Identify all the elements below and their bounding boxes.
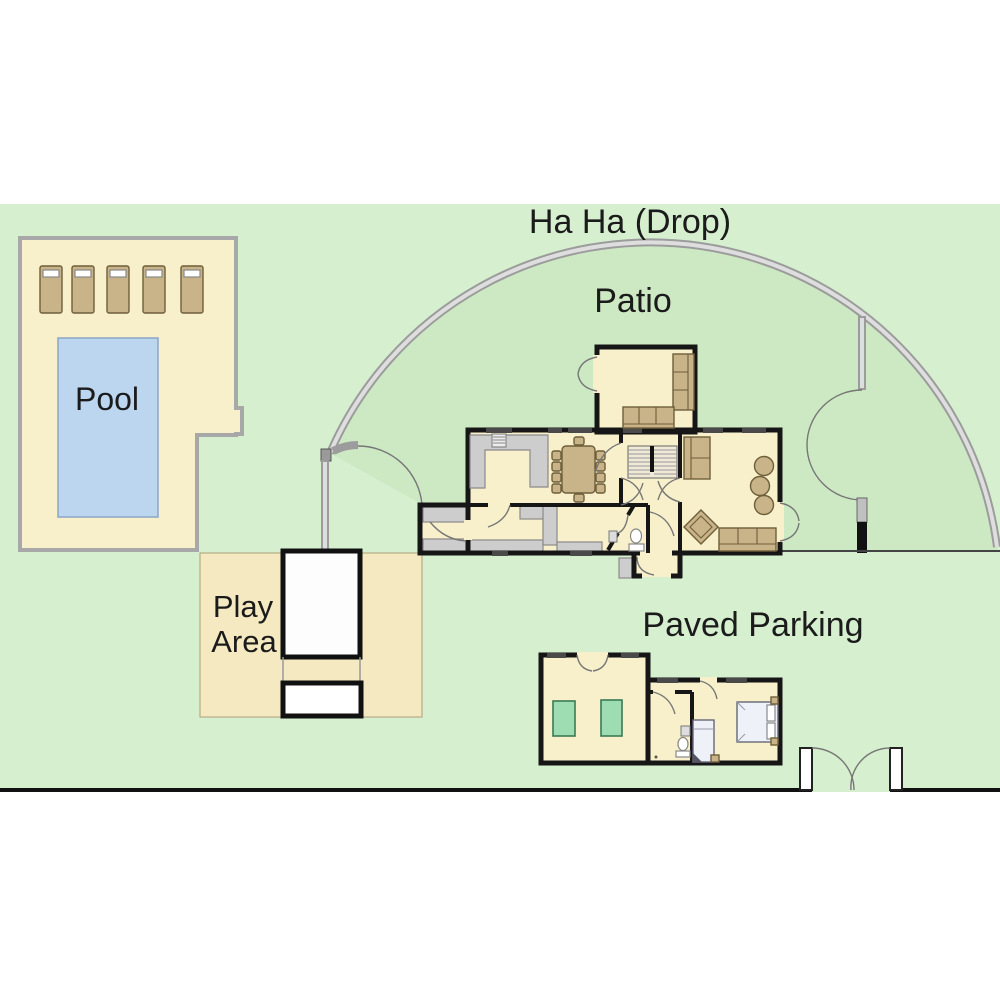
shower-drain	[655, 756, 658, 759]
play-equipment-small	[283, 683, 361, 716]
play-area-label-line2: Area	[211, 624, 277, 659]
bedside-block	[711, 755, 719, 762]
games-table	[601, 700, 622, 736]
east-gate-post-top	[857, 498, 867, 522]
pillow	[767, 723, 775, 739]
dining-table	[562, 446, 595, 493]
games-table	[553, 701, 575, 736]
east-gate-post	[857, 522, 867, 553]
annexe-double-door-gap	[577, 652, 608, 659]
toilet	[631, 529, 642, 543]
site-plan: Pool Play Area	[0, 0, 1000, 1000]
patio-label: Patio	[594, 282, 672, 320]
pool-label: Pool	[75, 381, 139, 417]
sitting-room-door-gap	[593, 355, 601, 393]
sofa-horizontal	[623, 407, 674, 428]
site-plan-page: Pool Play Area	[0, 0, 1000, 1000]
round-chair	[755, 457, 774, 476]
annexe-bedroom-door-gap	[700, 677, 717, 684]
front-door-gap	[640, 549, 672, 557]
play-area: Play Area	[200, 551, 422, 717]
south-gate-leaf-left	[800, 748, 812, 790]
annexe-toilet-cistern	[676, 751, 690, 757]
pillow	[767, 705, 775, 721]
living-room-door-gap	[776, 502, 784, 542]
wc-basin	[609, 531, 617, 542]
sun-lounger	[143, 266, 165, 313]
sun-lounger	[72, 266, 94, 313]
sofa-three-seat	[719, 528, 776, 551]
sofa-vertical	[673, 354, 694, 410]
bed-post	[771, 697, 778, 704]
sun-lounger	[40, 266, 62, 313]
sun-lounger	[181, 266, 203, 313]
south-gate-leaf-right	[890, 748, 902, 790]
paved-parking-label: Paved Parking	[642, 606, 863, 644]
play-equipment-large	[283, 551, 360, 657]
sun-lounger	[107, 266, 129, 313]
wing-door-gap	[464, 520, 472, 540]
stair-rail	[650, 446, 654, 472]
play-area-label-line1: Play	[213, 589, 274, 624]
toilet-cistern	[629, 544, 644, 551]
haha-label: Ha Ha (Drop)	[529, 203, 731, 241]
swimming-pool	[58, 338, 158, 517]
annexe-toilet	[678, 738, 688, 751]
annexe-basin	[681, 726, 690, 736]
bed-post	[771, 738, 778, 745]
round-chair	[755, 496, 774, 515]
round-chair	[751, 477, 770, 496]
west-gate-post	[321, 449, 331, 461]
staircase	[628, 446, 677, 478]
